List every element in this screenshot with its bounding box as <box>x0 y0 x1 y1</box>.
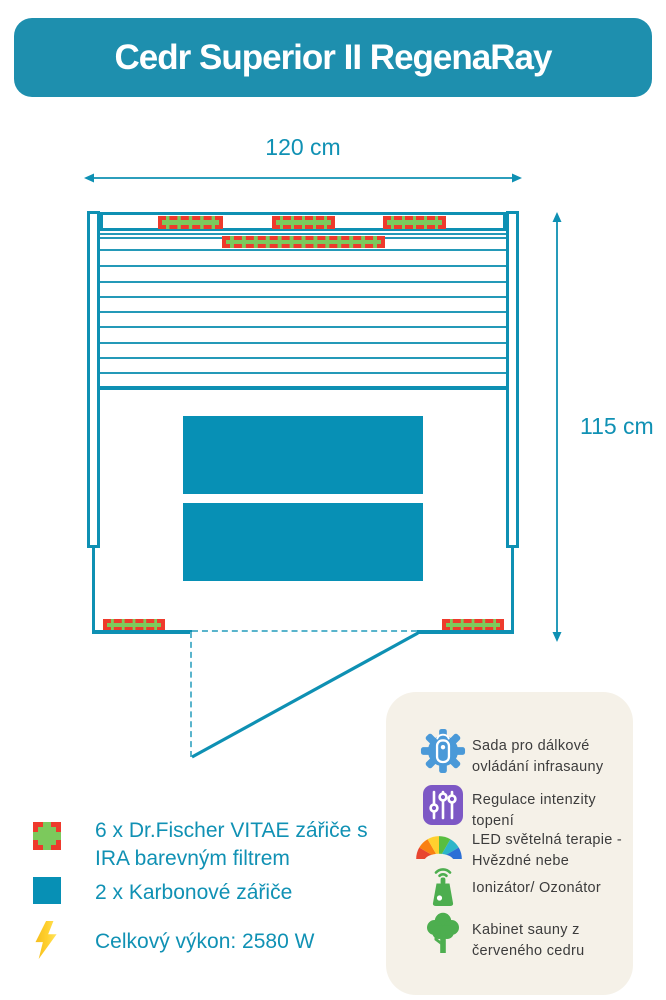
led-rainbow-icon <box>416 832 462 865</box>
carbon-heater-swatch <box>33 877 61 904</box>
slat-line <box>100 296 506 298</box>
height-dimension-arrow <box>549 211 565 643</box>
title-banner: Cedr Superior II RegenaRay <box>14 18 652 97</box>
vitae-heater-swatch <box>33 822 61 850</box>
bottom-wall-right <box>417 630 514 634</box>
height-dimension-label: 115 cm <box>580 413 654 440</box>
bench-front-edge <box>100 386 506 390</box>
lightning-bolt-icon <box>31 921 59 959</box>
slat-line <box>100 311 506 313</box>
vitae-heater-strip <box>383 216 446 229</box>
remote-control-gear-icon <box>420 728 466 779</box>
carbon-heater-panel <box>183 416 423 494</box>
feature-label: Ionizátor/ Ozonátor <box>472 878 624 899</box>
intensity-sliders-icon <box>423 785 463 830</box>
bottom-wall-left <box>92 630 192 634</box>
legend-label: Celkový výkon: 2580 W <box>95 928 395 956</box>
slat-line <box>100 326 506 328</box>
slat-line <box>100 281 506 283</box>
left-wall-post <box>87 211 100 548</box>
legend-label: 6 x Dr.Fischer VITAE zářiče s IRA barevn… <box>95 817 373 873</box>
slat-line <box>100 357 506 359</box>
sauna-infographic: Cedr Superior II RegenaRay 120 cm 115 cm <box>0 0 666 1000</box>
page-title: Cedr Superior II RegenaRay <box>115 38 552 78</box>
feature-label: LED světelná terapie - Hvězdné nebe <box>472 830 624 872</box>
width-dimension-label: 120 cm <box>85 134 521 161</box>
vitae-heater-strip <box>222 236 385 248</box>
feature-label: Regulace intenzity topení <box>472 790 624 832</box>
carbon-heater-panel <box>183 503 423 581</box>
vitae-heater-strip <box>158 216 223 229</box>
slat-line <box>100 265 506 267</box>
feature-label: Sada pro dálkové ovládání infrasauny <box>472 736 624 778</box>
cedar-tree-icon <box>423 910 463 959</box>
side-wall-right <box>511 545 514 634</box>
side-wall-left <box>92 545 95 634</box>
slat-line <box>100 372 506 374</box>
width-dimension-arrow <box>83 170 523 186</box>
feature-label: Kabinet sauny z červeného cedru <box>472 920 624 962</box>
legend-label: 2 x Karbonové zářiče <box>95 879 395 907</box>
ionizer-icon <box>423 864 463 913</box>
slat-line <box>100 342 506 344</box>
vitae-heater-strip <box>272 216 335 229</box>
slat-line <box>100 233 506 235</box>
right-wall-post <box>506 211 519 548</box>
slat-line <box>100 249 506 251</box>
